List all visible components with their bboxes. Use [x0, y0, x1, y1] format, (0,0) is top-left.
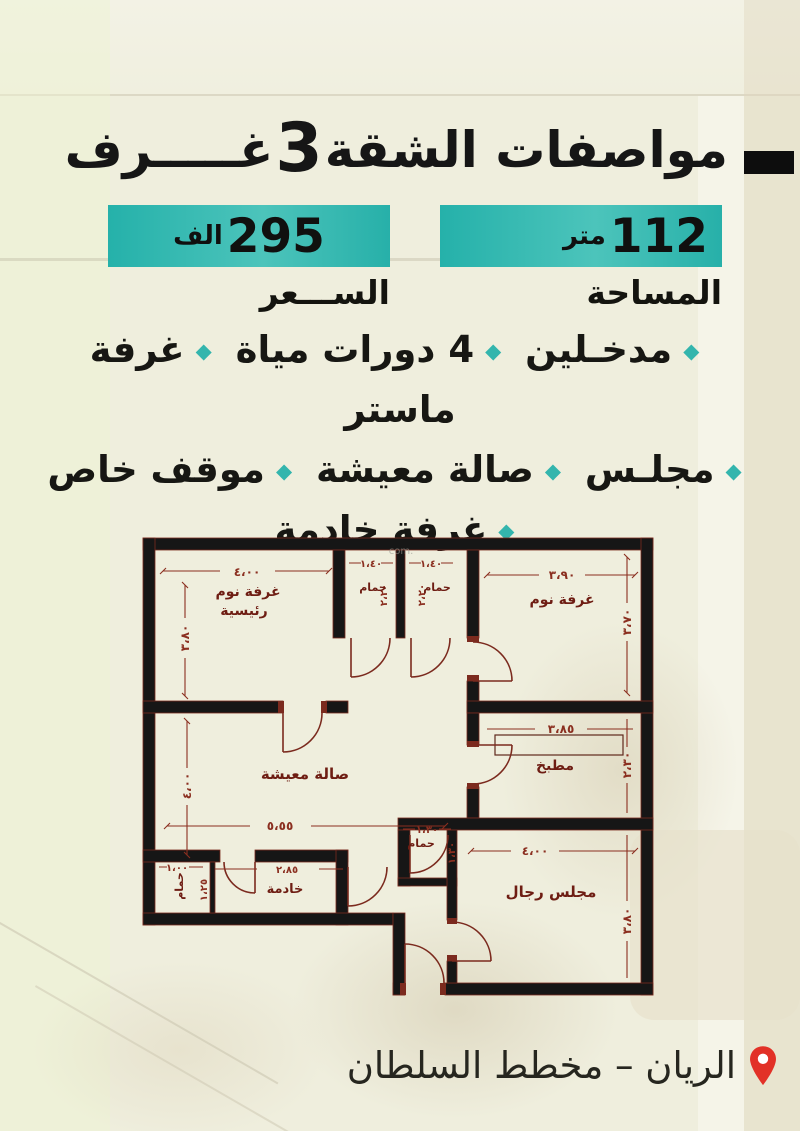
- dim-bath2-width: ١،٤٠: [420, 559, 442, 570]
- dim-bedroom-height: ٣،٧٠: [620, 609, 634, 636]
- dim-maid-bath-height: ١،٢٥: [199, 879, 210, 901]
- location-text: الريان – مخطط السلطان: [347, 1044, 736, 1087]
- area-label: المساحة: [440, 273, 722, 312]
- room-label-majlis-bath: حمام: [407, 837, 435, 850]
- room-label-bath1: حمام: [359, 581, 387, 594]
- room-label-bedroom: غرفة نوم: [529, 592, 594, 608]
- title-prefix: مواصفات الشقة: [325, 121, 728, 179]
- price-unit: الف: [173, 221, 223, 251]
- area-unit: متر: [563, 221, 606, 251]
- diamond-bullet-icon: ◆: [196, 339, 212, 363]
- dim-kitchen-height: ٢،٣٠: [620, 752, 634, 779]
- room-label-living: صالة معيشة: [261, 765, 349, 783]
- room-label-maid: خادمة: [267, 882, 304, 897]
- background-wall-band: [0, 0, 800, 96]
- price-badge-group: 295 الف الســـعر: [108, 205, 390, 312]
- plan-watermark: .com: [389, 546, 414, 557]
- dim-kitchen-width: ٣،٨٥: [548, 722, 575, 736]
- room-label-bath2: حمام: [423, 581, 451, 594]
- features-row-2: ◆مجلـس ◆صالة معيشة ◆موقف خاص: [30, 440, 770, 500]
- title-suffix: غـــــرف: [65, 121, 274, 179]
- dim-bath1-width: ١،٤٠: [360, 559, 382, 570]
- location-footer: الريان – مخطط السلطان: [347, 1044, 778, 1087]
- area-badge-group: 112 متر المساحة: [440, 205, 722, 312]
- title-room-count: 3: [275, 109, 322, 188]
- room-label-kitchen: مطبخ: [536, 758, 574, 774]
- price-value: 295: [227, 213, 325, 260]
- location-pin-icon: [748, 1045, 778, 1087]
- dim-majlis-height: ٣،٨٠: [620, 908, 634, 935]
- dim-master-height: ٣،٨٠: [178, 625, 192, 652]
- area-badge: 112 متر: [440, 205, 722, 267]
- page-title: مواصفات الشقة3غـــــرف: [0, 112, 794, 199]
- dim-living-width: ٥،٥٥: [267, 819, 294, 833]
- feature-bathrooms: 4 دورات مياة: [236, 328, 474, 371]
- price-badge: 295 الف: [108, 205, 390, 267]
- features-row-1: ◆مدخـلين ◆4 دورات مياة ◆غرفة ماستر: [30, 320, 770, 440]
- title-dash-bar: [744, 151, 794, 174]
- dim-master-width: ٤،٠٠: [234, 565, 261, 579]
- dim-majlis-width: ٤،٠٠: [522, 844, 549, 858]
- area-value: 112: [610, 213, 708, 260]
- diamond-bullet-icon: ◆: [545, 459, 561, 483]
- floor-plan: ٤،٠٠ ٣،٨٠ ١،٤٠ ١،٤٠ ٢،٢٠ ٢،٢٠ ٣،٩٠ ٣،٧٠ …: [115, 533, 700, 1018]
- dim-living-height: ٤،٠٠: [180, 773, 194, 800]
- diamond-bullet-icon: ◆: [485, 339, 501, 363]
- room-label-majlis: مجلس رجال: [506, 883, 597, 901]
- real-estate-flyer: مواصفات الشقة3غـــــرف 112 متر المساحة 2…: [0, 0, 800, 1131]
- room-label-maid-bath: حمام: [173, 872, 186, 900]
- dim-bedroom-width: ٣،٩٠: [549, 568, 576, 582]
- feature-entrances: مدخـلين: [525, 328, 672, 371]
- diamond-bullet-icon: ◆: [276, 459, 292, 483]
- plan-door-jambs: [278, 636, 479, 995]
- dim-majlis-bath-height: ١،٣٠: [447, 842, 458, 864]
- diamond-bullet-icon: ◆: [726, 459, 742, 483]
- feature-private-parking: موقف خاص: [47, 448, 265, 491]
- diamond-bullet-icon: ◆: [683, 339, 699, 363]
- dim-maid-width: ٢،٨٥: [276, 865, 298, 876]
- room-label-master-1: غرفة نوم: [215, 584, 280, 600]
- feature-majlis: مجلـس: [585, 448, 715, 491]
- features-list: ◆مدخـلين ◆4 دورات مياة ◆غرفة ماستر ◆مجلـ…: [30, 320, 770, 560]
- feature-living-hall: صالة معيشة: [316, 448, 534, 491]
- dim-majlis-bath-width: ١،٣٠: [416, 825, 438, 836]
- room-label-master-2: رئيسية: [220, 603, 267, 619]
- price-label: الســـعر: [108, 273, 390, 312]
